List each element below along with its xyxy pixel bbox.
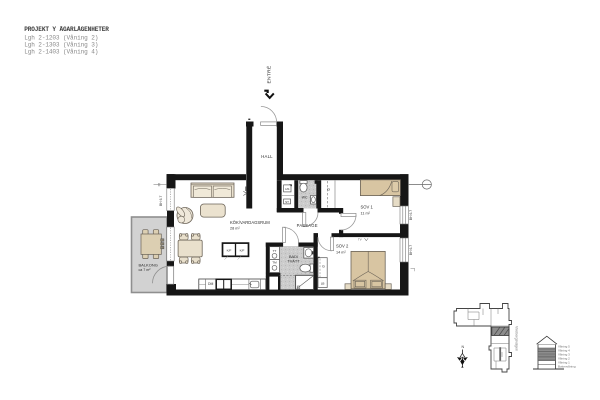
svg-text:HS: HS [285,187,289,191]
svg-text:SOV 2: SOV 2 [336,244,349,249]
svg-text:N: N [461,345,464,349]
svg-text:TM: TM [272,261,277,265]
svg-text:ca 7 m²: ca 7 m² [139,268,152,272]
svg-text:TVÄTT: TVÄTT [287,259,300,264]
svg-text:Lgh 2-1203 (Våning 2): Lgh 2-1203 (Våning 2) [24,34,98,41]
svg-text:Bottenvåning: Bottenvåning [558,365,576,369]
svg-text:LB: LB [321,282,325,286]
svg-text:Lgh 2-1403 (Våning 4): Lgh 2-1403 (Våning 4) [24,49,98,56]
svg-text:K/F: K/F [227,248,232,252]
svg-text:BH 6.7: BH 6.7 [409,245,413,255]
svg-text:BALKONG: BALKONG [139,262,158,267]
svg-text:WC: WC [302,196,308,200]
svg-text:TV: TV [358,238,362,242]
svg-text:BH 6.7: BH 6.7 [159,196,163,206]
svg-text:HALL: HALL [261,154,273,159]
svg-text:TT: TT [273,249,277,253]
svg-text:ENTRÉ: ENTRÉ [266,65,273,84]
svg-text:G: G [322,265,325,269]
svg-text:BH 6.7: BH 6.7 [409,210,413,220]
svg-text:K/F: K/F [240,248,245,252]
svg-text:DM: DM [208,282,213,286]
svg-text:14 m²: 14 m² [336,251,346,255]
svg-text:ST: ST [285,200,289,204]
svg-text:Lgh 2-1303 (Våning 3): Lgh 2-1303 (Våning 3) [24,41,98,48]
svg-text:G: G [327,187,330,191]
svg-text:PASSAGE: PASSAGE [297,223,318,228]
svg-text:11 m²: 11 m² [361,211,371,215]
svg-text:PROJEKT Y ÄGARLÄGENHETER: PROJEKT Y ÄGARLÄGENHETER [24,26,109,33]
svg-text:SOV 1: SOV 1 [361,205,374,210]
svg-text:KÖK/VARDAGSRUM: KÖK/VARDAGSRUM [230,220,270,225]
svg-text:28 m²: 28 m² [230,227,240,231]
svg-text:Virebergsvägen: Virebergsvägen [515,326,519,351]
